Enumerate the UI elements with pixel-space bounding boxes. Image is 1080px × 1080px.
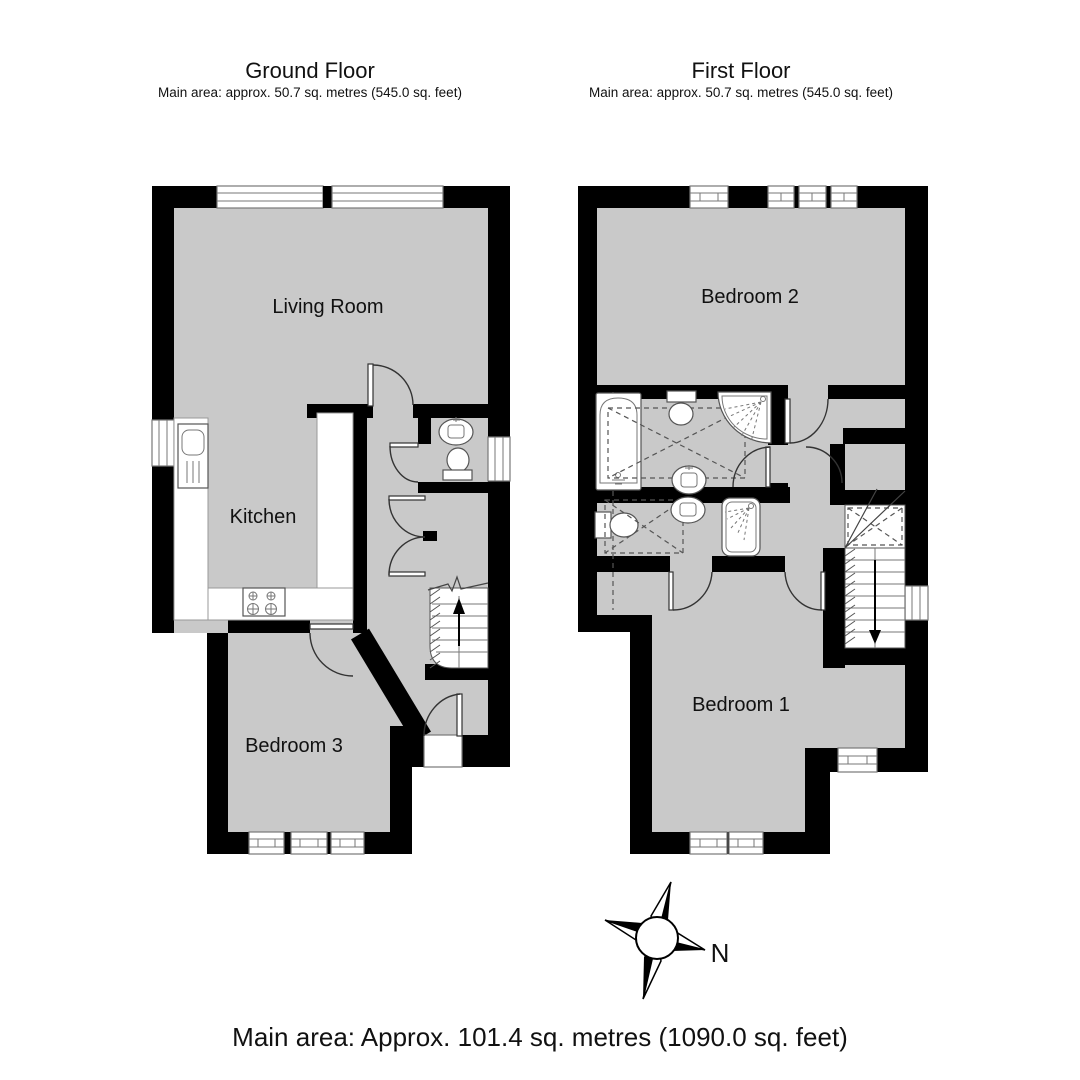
basin-icon xyxy=(671,497,705,523)
floorplan-image: Ground Floor Main area: approx. 50.7 sq.… xyxy=(0,0,1080,1080)
window-mullion xyxy=(323,186,332,208)
north-label: N xyxy=(711,938,730,968)
window xyxy=(331,832,364,854)
basin-icon xyxy=(672,465,706,494)
window xyxy=(690,186,728,208)
window xyxy=(217,186,323,208)
window xyxy=(152,420,174,466)
window xyxy=(291,832,327,854)
ground-floor-subtitle: Main area: approx. 50.7 sq. metres (545.… xyxy=(158,85,462,100)
first-floor-plan: Bedroom 2 Bedroom 1 xyxy=(578,186,928,854)
window xyxy=(332,186,443,208)
window xyxy=(729,832,763,854)
hob-icon xyxy=(243,588,285,616)
first-floor-subtitle: Main area: approx. 50.7 sq. metres (545.… xyxy=(589,85,893,100)
toilet-icon xyxy=(595,512,638,538)
stairs-down-icon xyxy=(845,489,905,648)
first-floor-title: First Floor xyxy=(692,58,791,83)
kitchen-sink-icon xyxy=(178,424,208,488)
window xyxy=(690,832,727,854)
window xyxy=(831,186,857,208)
bedroom-2-label: Bedroom 2 xyxy=(701,286,799,308)
living-room-label: Living Room xyxy=(272,296,383,318)
window xyxy=(838,748,877,772)
compass-rose: N xyxy=(605,882,729,999)
total-area-label: Main area: Approx. 101.4 sq. metres (109… xyxy=(232,1022,848,1052)
kitchen-label: Kitchen xyxy=(230,506,297,528)
window xyxy=(905,586,928,620)
stairs-up-icon xyxy=(428,577,488,668)
window xyxy=(768,186,794,208)
floorplan-page: Ground Floor Main area: approx. 50.7 sq.… xyxy=(0,0,1080,1080)
toilet-icon xyxy=(667,391,696,425)
window xyxy=(249,832,284,854)
shower-icon xyxy=(722,498,760,556)
bedroom-1-label: Bedroom 1 xyxy=(692,694,790,716)
window xyxy=(799,186,826,208)
ground-floor-plan: Living Room Kitchen Bedroom 3 xyxy=(152,186,510,854)
compass-center xyxy=(636,917,678,959)
bedroom-3-label: Bedroom 3 xyxy=(245,735,343,757)
window xyxy=(488,437,510,481)
ground-floor-title: Ground Floor xyxy=(245,58,375,83)
